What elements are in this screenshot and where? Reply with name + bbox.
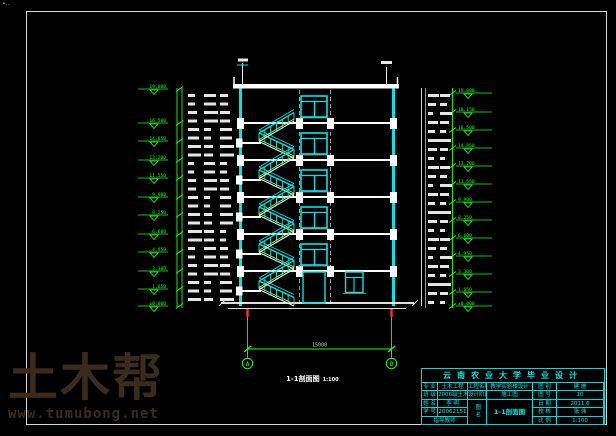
dim-text-blob (428, 211, 440, 214)
column-section (237, 118, 244, 129)
dim-text-blob (428, 220, 437, 223)
dim-text-blob (428, 193, 438, 196)
dim-text-blob (440, 175, 447, 178)
dim-text-blob (440, 193, 449, 196)
watermark-brand: 土木帮 (8, 350, 164, 406)
dim-text-blob (220, 256, 228, 259)
elevation-triangle (150, 90, 158, 95)
dim-text-blob (220, 154, 234, 157)
tb-label-major: 专 业 (422, 383, 438, 391)
tb-label-figure-name: 图名 (468, 400, 487, 425)
dim-text-blob (204, 205, 210, 208)
dim-text-blob (440, 220, 448, 223)
dim-text-blob (440, 238, 450, 241)
elevation-triangle (464, 293, 472, 298)
dim-text-blob (204, 239, 214, 242)
dim-text-blob (204, 298, 213, 301)
elevation-triangle (464, 185, 472, 190)
dim-text-blob (428, 121, 438, 124)
red-tick (246, 309, 248, 317)
dim-text-blob (204, 162, 215, 165)
elevation-triangle (464, 167, 472, 172)
elevation-triangle (150, 307, 158, 312)
elevation-triangle (464, 113, 472, 118)
column-section (296, 229, 303, 240)
dim-text-blob (188, 196, 198, 199)
elevation-triangle (464, 275, 472, 280)
dim-text-blob (188, 281, 199, 284)
dim-text-blob (428, 139, 440, 142)
dim-text-blob (440, 247, 447, 250)
axis-bubble-label: A (246, 361, 250, 368)
dim-text-blob (204, 264, 218, 267)
column-section (296, 155, 303, 166)
dim-text-blob (440, 211, 451, 214)
dim-text-blob (204, 290, 211, 293)
dim-text-blob (188, 145, 201, 148)
dim-text-blob (220, 137, 232, 140)
dim-text-blob (440, 121, 449, 124)
dim-text-blob (204, 171, 215, 174)
dim-text-blob (220, 298, 234, 301)
tb-value-student-no: 20062151 (438, 408, 468, 416)
column-section (327, 192, 334, 203)
dim-text-blob (428, 157, 434, 160)
dim-text-blob (188, 264, 197, 267)
dim-text-blob (440, 202, 446, 205)
cad-canvas: ∙‥ 19.80016.50014.85013.20011.5509.9008.… (0, 0, 616, 436)
dim-text-blob (440, 292, 448, 295)
elevation-triangle (464, 221, 472, 226)
dim-text-blob (428, 265, 438, 268)
dim-text-blob (188, 222, 200, 225)
roof-label-blob (381, 61, 392, 64)
dim-text-blob (220, 213, 233, 216)
dim-text-blob (204, 188, 217, 191)
dim-text-blob (220, 230, 226, 233)
dim-text-blob (220, 145, 234, 148)
dim-text-blob (220, 239, 226, 242)
elevation-triangle (464, 149, 472, 154)
landing-beam (236, 250, 243, 259)
dim-text-blob (428, 130, 435, 133)
dim-text-blob (204, 256, 216, 259)
dim-text-blob (204, 213, 212, 216)
elevation-triangle (150, 216, 158, 221)
dim-text-blob (428, 274, 435, 277)
tb-value-sheet-type: 建 施 (557, 383, 604, 391)
elevation-triangle (150, 124, 158, 129)
dim-text-blob (428, 94, 439, 97)
dim-text-blob (220, 188, 229, 191)
dim-text-blob (188, 230, 202, 233)
column-section (237, 266, 244, 277)
column-section (237, 192, 244, 203)
elevation-triangle (150, 253, 158, 258)
dim-text-blob (428, 184, 433, 187)
elevation-triangle (464, 131, 472, 136)
column-section (390, 155, 397, 166)
tb-label-student-no: 学 号 (422, 408, 438, 416)
dim-text-blob (428, 283, 440, 286)
dim-text-blob (220, 162, 227, 165)
tb-label-date: 日 期 (533, 400, 557, 408)
title-block-grid: 专 业 土木工程 工程名称 教学实验楼设计 图 别 建 施 班 级 2006级土… (422, 383, 604, 425)
dim-text-blob (188, 298, 201, 301)
door (303, 272, 325, 303)
dim-text-blob (440, 229, 445, 232)
dim-text-blob (188, 247, 195, 250)
dim-text-blob (188, 120, 197, 123)
dim-text-blob (428, 148, 437, 151)
dim-text-blob (188, 256, 195, 259)
tb-value-sheet-no: 10 (557, 391, 604, 399)
tb-value-name: 李 明 (438, 400, 468, 408)
dim-text-blob (428, 247, 436, 250)
tb-value-class: 2006级土木 (438, 391, 468, 399)
tb-label-name: 姓 名 (422, 400, 438, 408)
elevation-triangle (150, 179, 158, 184)
dim-text-blob (220, 111, 230, 114)
dim-text-blob (440, 166, 450, 169)
column-section (237, 229, 244, 240)
dim-text-blob (220, 103, 228, 106)
dim-text-blob (220, 171, 227, 174)
dim-text-blob (220, 290, 232, 293)
dim-text-blob (220, 222, 233, 225)
dim-text-blob (440, 148, 448, 151)
dim-text-blob (204, 137, 211, 140)
column-section (327, 155, 334, 166)
tb-label-scale: 比 例 (533, 417, 557, 425)
dim-text-blob (428, 292, 437, 295)
dim-text-blob (204, 196, 210, 199)
landing-beam (236, 213, 243, 222)
dim-text-blob (428, 166, 439, 169)
dim-text-blob (188, 239, 202, 242)
dim-text-blob (440, 283, 451, 286)
dim-text-blob (204, 247, 216, 250)
axis-bubble-label: D (390, 361, 394, 368)
dim-text-blob (188, 213, 200, 216)
column-section (390, 266, 397, 277)
dim-text-blob (188, 137, 199, 140)
red-tick (390, 309, 392, 317)
dim-text-blob (204, 179, 217, 182)
tb-label-class: 班 级 (422, 391, 438, 399)
dim-text-blob (188, 154, 201, 157)
dim-text-blob (220, 281, 232, 284)
landing-beam (236, 287, 243, 296)
dim-text-blob (428, 229, 434, 232)
dim-text-blob (440, 274, 446, 277)
dim-text-blob (188, 171, 194, 174)
elevation-triangle (150, 272, 158, 277)
dim-text-blob (204, 103, 216, 106)
column-section (327, 266, 334, 277)
tb-value-project: 教学实验楼设计 (487, 383, 533, 391)
dimension-value: 15000 (312, 343, 327, 349)
dim-text-blob (220, 247, 228, 250)
elevation-triangle (464, 94, 472, 99)
dim-text-blob (428, 202, 435, 205)
column-section (390, 229, 397, 240)
dim-text-blob (440, 112, 452, 115)
landing-beam (236, 176, 243, 185)
dim-text-blob (204, 230, 214, 233)
dim-text-blob (220, 264, 230, 267)
dim-text-blob (220, 179, 229, 182)
roof-slab (233, 84, 399, 89)
dim-text-blob (204, 273, 218, 276)
watermark: 土木帮 www.tumubong.net (8, 350, 164, 422)
dim-text-blob (428, 256, 433, 259)
tb-value-stage: 施工图 (487, 391, 533, 399)
dim-text-blob (440, 130, 446, 133)
dim-text-blob (220, 94, 228, 97)
title-block: 云南农业大学毕业设计 专 业 土木工程 工程名称 教学实验楼设计 图 别 建 施… (421, 368, 605, 425)
drawing-title-text: 1-1剖面图 (286, 375, 320, 383)
column-section (237, 155, 244, 166)
column-section (296, 118, 303, 129)
dim-text-blob (440, 157, 445, 160)
dim-text-blob (204, 111, 218, 114)
tb-label-stage: 设计阶段 (468, 391, 487, 399)
roof-label-blob (238, 59, 248, 62)
column-section (390, 118, 397, 129)
dim-text-blob (204, 128, 211, 131)
dim-text-blob (428, 301, 434, 304)
building-section: 19.80016.50014.85013.20011.5509.9008.250… (138, 59, 492, 369)
column-section (327, 229, 334, 240)
elevation-triangle (150, 198, 158, 203)
dim-text-blob (188, 290, 199, 293)
dim-text-blob (428, 112, 433, 115)
dim-text-blob (440, 256, 452, 259)
tb-value-figure-name: 1-1剖面图 (487, 400, 533, 425)
dim-text-blob (188, 179, 196, 182)
dim-text-blob (220, 273, 230, 276)
tb-value-date: 2011.6 (557, 400, 604, 408)
elevation-triangle (150, 142, 158, 147)
dim-text-blob (204, 120, 218, 123)
dim-text-blob (428, 238, 439, 241)
column-section (327, 118, 334, 129)
dim-text-blob (440, 139, 451, 142)
elevation-triangle (464, 257, 472, 262)
dim-text-blob (440, 265, 449, 268)
dim-text-blob (204, 281, 211, 284)
dim-text-blob (188, 273, 197, 276)
dim-text-blob (220, 205, 231, 208)
dim-text-blob (188, 128, 199, 131)
elevation-triangle (150, 235, 158, 240)
dim-text-blob (220, 128, 232, 131)
dim-text-blob (440, 103, 447, 106)
dim-text-blob (428, 175, 436, 178)
dim-text-blob (204, 94, 216, 97)
dim-text-blob (220, 196, 231, 199)
tb-label-checker: 校 核 (533, 408, 557, 416)
watermark-url: www.tumubong.net (8, 406, 164, 422)
tb-label-sheet-no: 图 号 (533, 391, 557, 399)
tb-value-scale: 1:100 (557, 417, 604, 425)
elevation-triangle (464, 203, 472, 208)
dim-text-blob (204, 222, 212, 225)
dim-text-blob (188, 103, 195, 106)
tb-value-checker: 张 伟 (557, 408, 604, 416)
tb-label-sheet-type: 图 别 (533, 383, 557, 391)
dim-text-blob (428, 103, 436, 106)
landing-beam (236, 139, 243, 148)
drawing-title-scale: 1:100 (323, 377, 339, 383)
elevation-triangle (150, 161, 158, 166)
dim-text-blob (440, 184, 452, 187)
tb-label-project: 工程名称 (468, 383, 487, 391)
elevation-triangle (150, 290, 158, 295)
column-section (390, 192, 397, 203)
column-section (296, 192, 303, 203)
dim-text-blob (440, 301, 445, 304)
dim-text-blob (204, 145, 213, 148)
dim-text-blob (188, 188, 196, 191)
elevation-triangle (464, 307, 472, 312)
dim-text-blob (204, 154, 213, 157)
column-section (296, 266, 303, 277)
tb-label-advisor: 指导教师 (422, 417, 468, 425)
tb-value-major: 土木工程 (438, 383, 468, 391)
dim-text-blob (188, 205, 198, 208)
dim-text-blob (440, 94, 450, 97)
dim-text-blob (188, 162, 194, 165)
elevation-triangle (464, 239, 472, 244)
title-block-header: 云南农业大学毕业设计 (422, 369, 604, 383)
dim-text-blob (220, 120, 230, 123)
dim-text-blob (188, 111, 197, 114)
drawing-title: 1-1剖面图1:100 (286, 374, 339, 384)
dim-text-blob (188, 94, 195, 97)
